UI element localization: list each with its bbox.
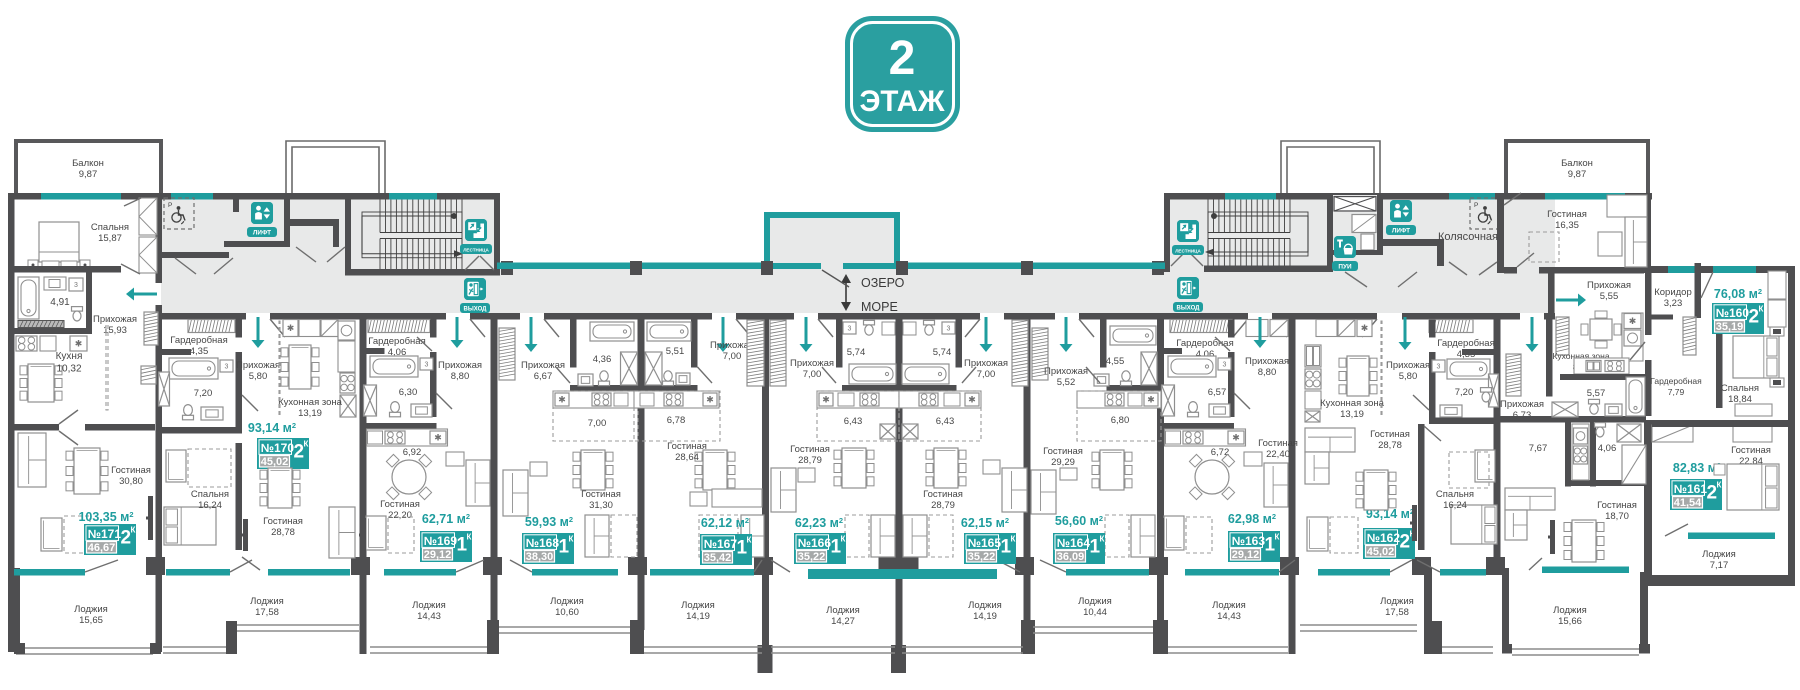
svg-text:К: К	[304, 440, 309, 449]
svg-text:14,27: 14,27	[831, 616, 855, 627]
svg-text:Коридор: Коридор	[1654, 287, 1692, 298]
svg-text:№161: №161	[1674, 482, 1708, 496]
svg-text:35,22: 35,22	[968, 551, 996, 563]
svg-text:МОРЕ: МОРЕ	[861, 300, 898, 314]
svg-text:№169: №169	[424, 534, 458, 548]
svg-text:22,40: 22,40	[1266, 449, 1290, 460]
svg-text:✱: ✱	[1147, 395, 1155, 405]
svg-text:Лоджия: Лоджия	[1078, 596, 1112, 607]
svg-text:6,92: 6,92	[403, 447, 422, 458]
svg-text:62,12 м2: 62,12 м2	[701, 516, 749, 530]
svg-text:10,44: 10,44	[1083, 607, 1107, 618]
svg-text:К: К	[841, 535, 846, 544]
svg-text:13,19: 13,19	[298, 408, 322, 419]
svg-text:Лоджия: Лоджия	[968, 600, 1002, 611]
svg-text:Р: Р	[1474, 202, 1478, 209]
svg-text:✱: ✱	[287, 323, 295, 333]
svg-text:3,23: 3,23	[1664, 298, 1683, 309]
svg-text:3: 3	[1223, 362, 1227, 369]
svg-text:Прихожая: Прихожая	[93, 314, 137, 325]
svg-text:Прихожая: Прихожая	[1386, 360, 1430, 371]
svg-text:3: 3	[225, 364, 229, 371]
svg-text:5,52: 5,52	[1057, 377, 1076, 388]
svg-text:Прихожая: Прихожая	[1044, 366, 1088, 377]
svg-text:31,30: 31,30	[589, 500, 613, 511]
svg-text:Гостиная: Гостиная	[1547, 209, 1587, 220]
svg-text:Гостиная: Гостиная	[263, 516, 303, 527]
svg-text:103,35 м2: 103,35 м2	[78, 510, 133, 524]
svg-text:Гостиная: Гостиная	[1370, 429, 1410, 440]
svg-text:10,32: 10,32	[56, 364, 81, 375]
svg-text:3: 3	[848, 326, 852, 333]
svg-text:3: 3	[74, 282, 78, 289]
svg-text:Прихожая: Прихожая	[790, 358, 834, 369]
svg-text:ВЫХОД: ВЫХОД	[464, 307, 488, 313]
svg-text:№166: №166	[798, 536, 832, 550]
svg-text:76,08 м2: 76,08 м2	[1714, 287, 1762, 301]
svg-text:№170: №170	[261, 441, 295, 455]
svg-text:15,87: 15,87	[98, 233, 122, 244]
svg-text:16,35: 16,35	[1555, 220, 1579, 231]
svg-text:Гостиная: Гостиная	[1731, 445, 1771, 456]
svg-text:7,00: 7,00	[803, 369, 822, 380]
svg-text:28,78: 28,78	[271, 527, 295, 538]
svg-text:✱: ✱	[1361, 323, 1369, 333]
svg-text:ЛЕСТНИЦА: ЛЕСТНИЦА	[463, 248, 489, 253]
svg-text:17,58: 17,58	[1385, 607, 1409, 618]
svg-text:Спальня: Спальня	[1436, 489, 1474, 500]
svg-text:35,22: 35,22	[798, 551, 826, 563]
svg-text:59,93 м2: 59,93 м2	[525, 515, 573, 529]
svg-text:✱: ✱	[1629, 316, 1637, 326]
svg-text:Р: Р	[168, 202, 172, 209]
svg-text:Балкон: Балкон	[72, 158, 104, 169]
svg-text:38,30: 38,30	[526, 551, 554, 563]
svg-text:18,70: 18,70	[1605, 511, 1629, 522]
svg-text:Гардеробная: Гардеробная	[1437, 338, 1494, 349]
svg-text:2: 2	[1707, 483, 1718, 504]
svg-text:15,65: 15,65	[79, 615, 103, 626]
svg-text:ЛИФТ: ЛИФТ	[253, 230, 271, 237]
svg-text:✱: ✱	[968, 395, 976, 405]
svg-text:62,71 м2: 62,71 м2	[422, 512, 470, 526]
svg-text:№167: №167	[704, 537, 738, 551]
svg-text:35,19: 35,19	[1716, 321, 1744, 333]
svg-text:ОЗЕРО: ОЗЕРО	[861, 276, 905, 290]
svg-text:22,20: 22,20	[388, 510, 412, 521]
svg-text:6,43: 6,43	[936, 416, 955, 427]
svg-text:16,24: 16,24	[198, 500, 222, 511]
svg-text:Гостиная: Гостиная	[1258, 438, 1298, 449]
svg-text:8,80: 8,80	[1258, 367, 1277, 378]
svg-text:Колясочная: Колясочная	[1438, 231, 1498, 243]
svg-text:7,20: 7,20	[1455, 387, 1474, 398]
svg-text:К: К	[1717, 481, 1722, 490]
svg-text:29,12: 29,12	[1232, 549, 1260, 561]
svg-text:3: 3	[947, 326, 951, 333]
svg-text:Кухонная зона: Кухонная зона	[278, 397, 343, 408]
svg-text:К: К	[1275, 533, 1280, 542]
svg-text:7,17: 7,17	[1710, 560, 1729, 571]
svg-text:К: К	[1759, 305, 1764, 314]
svg-text:Лоджия: Лоджия	[1553, 605, 1587, 616]
svg-text:Кухня: Кухня	[56, 351, 83, 362]
svg-text:Кухонная зона: Кухонная зона	[1320, 398, 1385, 409]
svg-text:14,19: 14,19	[973, 611, 997, 622]
svg-text:6,43: 6,43	[844, 416, 863, 427]
svg-text:14,19: 14,19	[686, 611, 710, 622]
svg-text:45,02: 45,02	[261, 456, 289, 468]
svg-text:ВЫХОД: ВЫХОД	[1177, 306, 1201, 312]
svg-text:Лоджия: Лоджия	[550, 596, 584, 607]
svg-text:Гостиная: Гостиная	[1043, 446, 1083, 457]
svg-text:13,19: 13,19	[1340, 409, 1364, 420]
svg-text:Лоджия: Лоджия	[412, 600, 446, 611]
svg-text:17,58: 17,58	[255, 607, 279, 618]
svg-text:ПУИ: ПУИ	[1338, 264, 1352, 271]
svg-text:5,74: 5,74	[933, 347, 952, 358]
svg-text:5,57: 5,57	[1587, 388, 1606, 399]
svg-text:7,00: 7,00	[723, 351, 742, 362]
svg-text:Гостиная: Гостиная	[790, 444, 830, 455]
svg-text:3: 3	[1437, 364, 1441, 371]
svg-text:№160: №160	[1716, 306, 1750, 320]
svg-text:16,24: 16,24	[1443, 500, 1467, 511]
svg-text:К: К	[569, 535, 574, 544]
svg-text:4,55: 4,55	[1106, 356, 1125, 367]
svg-text:ЛЕСТНИЦА: ЛЕСТНИЦА	[1175, 249, 1201, 254]
svg-text:№162: №162	[1367, 531, 1401, 545]
svg-text:2: 2	[294, 442, 305, 463]
svg-text:Лоджия: Лоджия	[1212, 600, 1246, 611]
svg-text:К: К	[1100, 535, 1105, 544]
svg-text:35,42: 35,42	[704, 552, 732, 564]
svg-text:Гардеробная: Гардеробная	[170, 335, 227, 346]
svg-text:6,57: 6,57	[1208, 387, 1227, 398]
svg-text:28,79: 28,79	[931, 500, 955, 511]
svg-text:14,43: 14,43	[1217, 611, 1241, 622]
svg-text:7,20: 7,20	[194, 388, 213, 399]
svg-text:10,60: 10,60	[555, 607, 579, 618]
svg-text:ЛИФТ: ЛИФТ	[1392, 228, 1410, 235]
svg-text:✱: ✱	[1232, 433, 1240, 443]
svg-text:28,79: 28,79	[798, 455, 822, 466]
svg-text:4,35: 4,35	[190, 346, 209, 357]
svg-text:62,15 м2: 62,15 м2	[961, 516, 1009, 530]
svg-text:Прихожая: Прихожая	[964, 358, 1008, 369]
svg-text:Гостиная: Гостиная	[923, 489, 963, 500]
svg-text:7,00: 7,00	[588, 418, 607, 429]
svg-text:№171: №171	[88, 527, 122, 541]
svg-text:9,87: 9,87	[1568, 169, 1587, 180]
svg-text:✱: ✱	[706, 395, 714, 405]
svg-text:Балкон: Балкон	[1561, 158, 1593, 169]
svg-text:7,79: 7,79	[1668, 387, 1685, 397]
svg-text:К: К	[747, 536, 752, 545]
svg-text:№164: №164	[1057, 536, 1091, 550]
svg-text:2: 2	[1400, 532, 1411, 553]
svg-text:К: К	[1011, 535, 1016, 544]
svg-text:28,78: 28,78	[1378, 440, 1402, 451]
svg-text:Гостиная: Гостиная	[667, 441, 707, 452]
svg-text:Гостиная: Гостиная	[581, 489, 621, 500]
svg-text:5,80: 5,80	[1399, 371, 1418, 382]
svg-text:Спальня: Спальня	[191, 489, 229, 500]
svg-text:36,09: 36,09	[1057, 551, 1085, 563]
svg-text:29,29: 29,29	[1051, 457, 1075, 468]
svg-text:5,80: 5,80	[249, 371, 268, 382]
svg-text:5,51: 5,51	[666, 346, 685, 357]
svg-text:4,06: 4,06	[1598, 443, 1617, 454]
svg-text:41,54: 41,54	[1674, 497, 1702, 509]
svg-text:К: К	[131, 526, 136, 535]
svg-text:Гостиная: Гостиная	[1597, 500, 1637, 511]
svg-text:4,91: 4,91	[50, 297, 70, 308]
svg-text:Прихожая: Прихожая	[1500, 399, 1544, 410]
svg-text:30,80: 30,80	[119, 476, 143, 487]
svg-text:Прихожая: Прихожая	[1245, 356, 1289, 367]
svg-text:62,98 м2: 62,98 м2	[1228, 512, 1276, 526]
svg-text:3: 3	[425, 362, 429, 369]
svg-text:№165: №165	[968, 536, 1002, 550]
svg-text:28,64: 28,64	[675, 452, 699, 463]
svg-text:✱: ✱	[75, 339, 83, 349]
svg-text:✱: ✱	[822, 395, 830, 405]
svg-text:✱: ✱	[434, 433, 442, 443]
svg-text:8,80: 8,80	[451, 371, 470, 382]
svg-text:62,23 м2: 62,23 м2	[795, 516, 843, 530]
svg-text:2: 2	[889, 32, 916, 85]
svg-text:6,78: 6,78	[667, 415, 686, 426]
svg-text:2: 2	[121, 528, 132, 549]
svg-text:46,67: 46,67	[88, 542, 116, 554]
svg-text:15,93: 15,93	[103, 325, 127, 336]
svg-text:45,02: 45,02	[1367, 546, 1395, 558]
svg-text:Лоджия: Лоджия	[1380, 596, 1414, 607]
svg-text:К: К	[467, 533, 472, 542]
svg-text:Лоджия: Лоджия	[826, 605, 860, 616]
svg-text:7,00: 7,00	[977, 369, 996, 380]
svg-text:Спальня: Спальня	[91, 222, 129, 233]
svg-text:9,87: 9,87	[79, 169, 98, 180]
svg-text:6,30: 6,30	[399, 387, 418, 398]
svg-text:Гостиная: Гостиная	[380, 499, 420, 510]
svg-text:Прихожая: Прихожая	[438, 360, 482, 371]
svg-text:15,66: 15,66	[1558, 616, 1582, 627]
svg-text:14,43: 14,43	[417, 611, 441, 622]
svg-text:✱: ✱	[558, 395, 566, 405]
svg-text:7,67: 7,67	[1529, 443, 1548, 454]
svg-text:6,80: 6,80	[1111, 415, 1130, 426]
svg-text:2: 2	[1749, 307, 1760, 328]
svg-text:Прихожая: Прихожая	[236, 360, 280, 371]
svg-text:18,84: 18,84	[1728, 394, 1752, 405]
svg-text:6,67: 6,67	[534, 371, 553, 382]
svg-text:Гардеробная: Гардеробная	[1650, 376, 1702, 386]
svg-text:Лоджия: Лоджия	[74, 604, 108, 615]
svg-text:ЭТАЖ: ЭТАЖ	[859, 85, 944, 118]
svg-text:Лоджия: Лоджия	[1702, 549, 1736, 560]
svg-text:Прихожая: Прихожая	[1587, 280, 1631, 291]
svg-text:56,60 м2: 56,60 м2	[1055, 514, 1103, 528]
svg-text:№168: №168	[526, 536, 560, 550]
svg-text:5,74: 5,74	[847, 347, 866, 358]
svg-text:Спальня: Спальня	[1721, 383, 1759, 394]
svg-text:№163: №163	[1232, 534, 1266, 548]
svg-text:93,14 м2: 93,14 м2	[248, 421, 296, 435]
svg-text:Гостиная: Гостиная	[111, 465, 151, 476]
svg-text:Лоджия: Лоджия	[250, 596, 284, 607]
svg-text:4,36: 4,36	[593, 354, 612, 365]
svg-text:5,55: 5,55	[1600, 291, 1619, 302]
svg-text:29,12: 29,12	[424, 549, 452, 561]
svg-text:Лоджия: Лоджия	[681, 600, 715, 611]
